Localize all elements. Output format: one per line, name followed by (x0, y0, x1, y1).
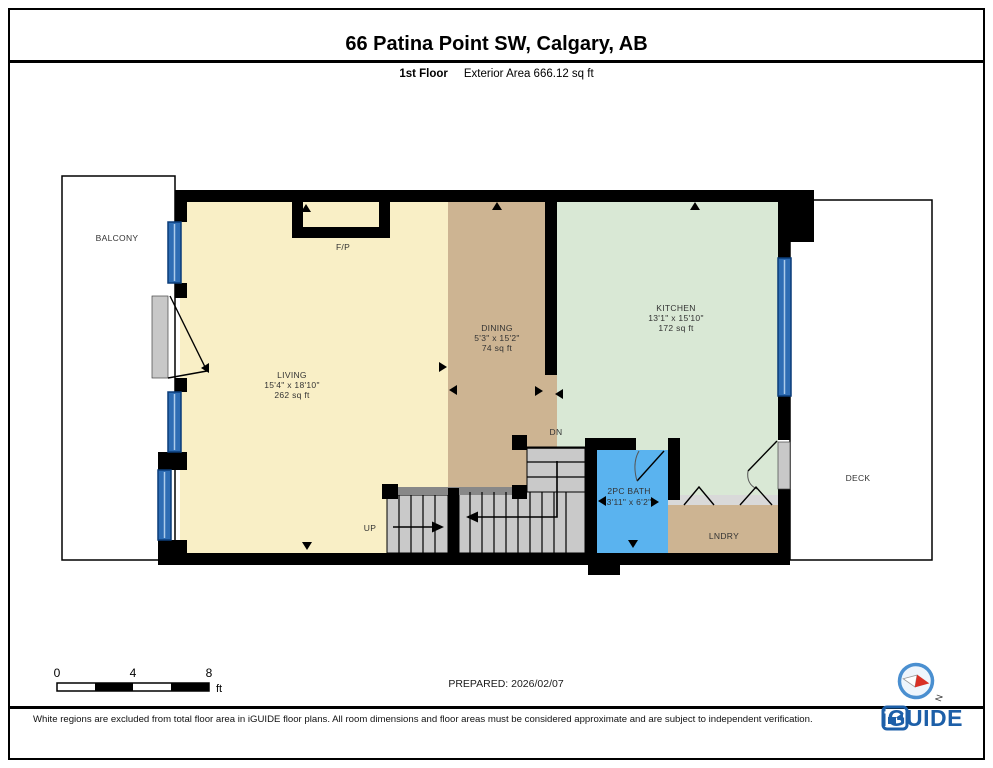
down-label: DN (550, 427, 563, 437)
deck-region: DECK (790, 200, 932, 560)
bath-dims: 3'11" x 6'2" (607, 497, 652, 507)
balcony-door (152, 296, 168, 378)
scale-tick-8: 8 (206, 666, 213, 680)
prepared-date: PREPARED: 2026/02/07 (448, 678, 564, 690)
living-label: LIVING (277, 370, 307, 380)
stairs-run-left (387, 495, 448, 553)
laundry-label: LNDRY (709, 531, 739, 541)
dining-area: 74 sq ft (482, 343, 513, 353)
dining-label: DINING (481, 323, 513, 333)
living-area: 262 sq ft (274, 390, 310, 400)
deck-label: DECK (846, 473, 871, 483)
iguide-logo: iGUIDE (881, 705, 963, 732)
bath-label: 2PC BATH (607, 486, 650, 496)
compass-north-icon: N (897, 662, 949, 703)
kitchen-area: 172 sq ft (658, 323, 694, 333)
iguide-logo-icon (881, 705, 909, 731)
deck-door (778, 442, 790, 489)
scale-unit: ft (216, 683, 222, 695)
scale-bar: 0 4 8 ft (54, 666, 222, 695)
kitchen-dims: 13'1" x 15'10" (648, 313, 704, 323)
stairs-down-floor (527, 447, 585, 495)
stair-edge-strip (397, 487, 527, 495)
footer-divider (10, 706, 983, 709)
footer-disclaimer: White regions are excluded from total fl… (33, 714, 813, 725)
balcony-label: BALCONY (96, 233, 139, 243)
floor-plan: BALCONY DECK (0, 0, 993, 768)
living-dims: 15'4" x 18'10" (264, 380, 320, 390)
north-label: N (933, 693, 945, 703)
floor-plan-page: 66 Patina Point SW, Calgary, AB 1st Floo… (0, 0, 993, 768)
scale-tick-0: 0 (54, 666, 61, 680)
laundry-floor (668, 505, 778, 553)
up-label: UP (364, 523, 376, 533)
scale-tick-4: 4 (130, 666, 137, 680)
dining-dims: 5'3" x 15'2" (474, 333, 520, 343)
kitchen-label: KITCHEN (656, 303, 695, 313)
fireplace-label: F/P (336, 242, 350, 252)
